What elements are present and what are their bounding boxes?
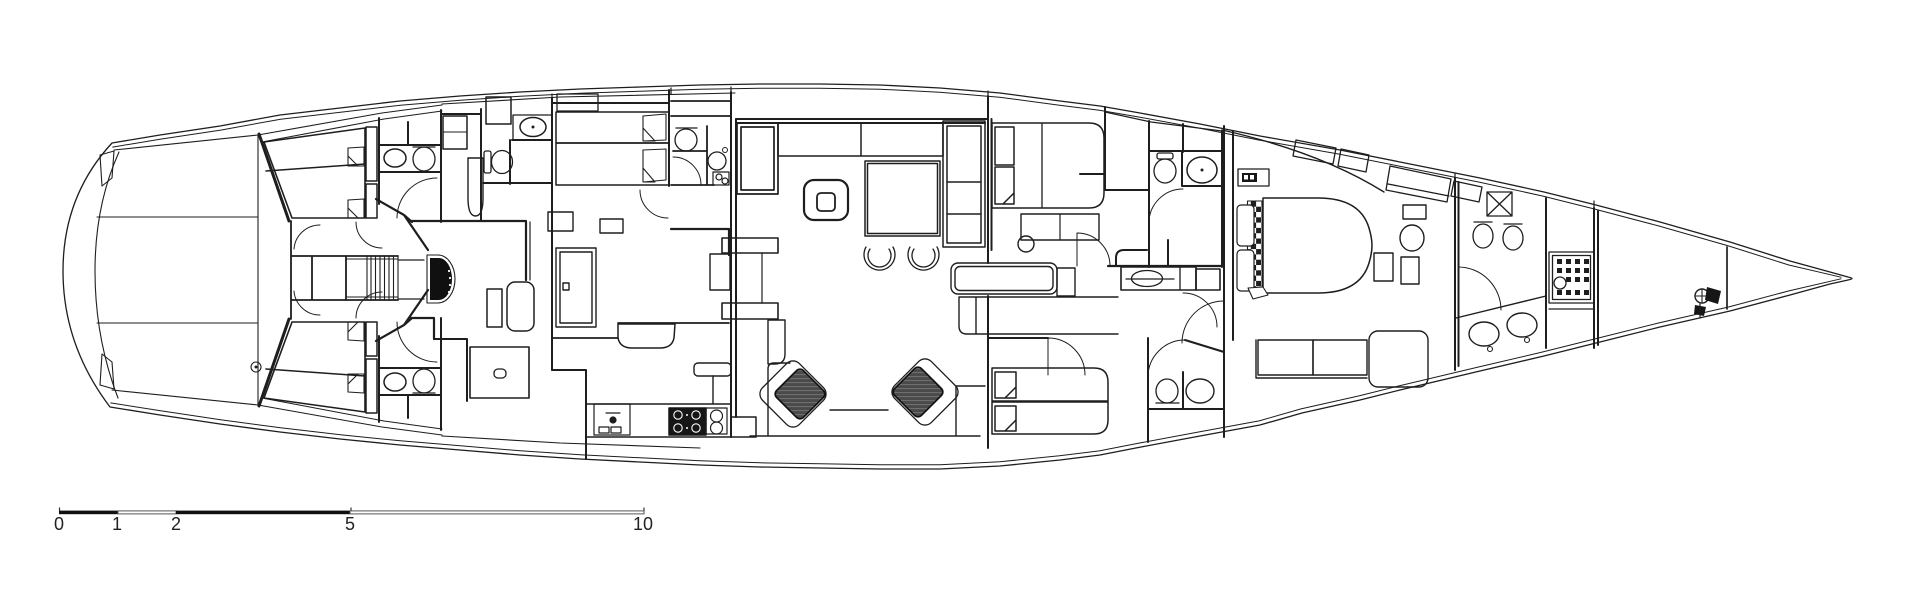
- svg-text:2: 2: [171, 514, 181, 534]
- svg-text:1: 1: [112, 514, 122, 534]
- svg-text:5: 5: [345, 514, 355, 534]
- svg-text:10: 10: [633, 514, 653, 534]
- svg-text:0: 0: [54, 514, 64, 534]
